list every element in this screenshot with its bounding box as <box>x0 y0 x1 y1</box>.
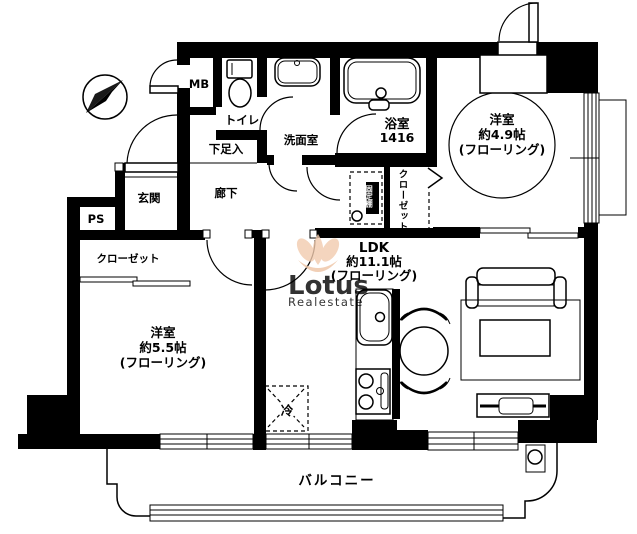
label-shoe-cabinet: 下足入 <box>209 142 244 156</box>
label-ldk-floor: (フローリング) <box>331 268 417 283</box>
rug-and-table-icon <box>461 300 580 380</box>
label-bathroom: 浴室 <box>384 116 410 131</box>
meterbox-door <box>150 60 178 93</box>
bathroom-door-arc <box>337 114 376 153</box>
label-closet-left: クローゼット <box>97 252 160 265</box>
label-bedroom2-floor: (フローリング) <box>120 355 206 370</box>
label-entrance: 玄関 <box>138 191 161 205</box>
label-closet-right: クローゼット <box>397 169 409 232</box>
label-bedroom1-floor: (フローリング) <box>459 142 545 157</box>
washroom-door-arc <box>260 97 293 130</box>
bedroom2-door-arc <box>207 240 252 285</box>
lotus-flower-icon <box>293 234 343 272</box>
label-hallway: 廊下 <box>215 186 238 200</box>
watermark-suffix: Realestate <box>288 295 364 309</box>
window-bedroom1-right <box>570 93 626 223</box>
floorplan: Lotus Realestate MB 可動棚 トイレ 洗面室 浴室 1416 … <box>0 0 637 534</box>
sliding-door-bedroom1 <box>480 228 578 238</box>
label-washroom: 洗面室 <box>284 133 319 147</box>
label-refrigerator: 冷 <box>281 403 294 418</box>
label-ldk-size: 約11.1帖 <box>346 254 402 269</box>
label-toilet: トイレ <box>225 113 260 127</box>
entrance-door <box>125 115 178 177</box>
label-bedroom2-name: 洋室 <box>150 325 176 340</box>
sliding-door-closet-left <box>80 277 190 286</box>
sofa-icon <box>466 268 566 308</box>
bedroom1-alcove <box>480 55 547 93</box>
washbasin-icon <box>275 58 320 86</box>
toilet-icon <box>227 60 252 107</box>
washroom-hall-door-arc <box>269 163 297 191</box>
dining-table-icon <box>398 309 450 393</box>
label-fixed-shelf: 固定棚 <box>364 185 373 209</box>
label-bedroom2-size: 約5.5帖 <box>139 340 187 355</box>
label-mb: MB <box>189 77 209 91</box>
label-movable-shelf: 可動棚 <box>192 116 213 125</box>
laundry-door-arc <box>307 167 340 200</box>
label-bedroom1-size: 約4.9帖 <box>478 127 526 142</box>
closet-right-door-mark <box>428 168 442 228</box>
label-bedroom1-name: 洋室 <box>489 112 515 127</box>
compass-icon <box>83 75 127 119</box>
label-balcony: バルコニー <box>298 473 375 489</box>
tv-board-icon <box>477 394 549 417</box>
label-pipe-space: PS <box>88 212 105 226</box>
window-bedroom2 <box>160 434 253 449</box>
stove-icon <box>356 369 390 414</box>
bedroom1-outer-door <box>498 3 538 57</box>
label-bathroom-size: 1416 <box>380 130 415 145</box>
window-balcony-door <box>428 432 518 450</box>
bathtub-icon <box>344 58 420 110</box>
window-ldk-left <box>266 434 352 449</box>
